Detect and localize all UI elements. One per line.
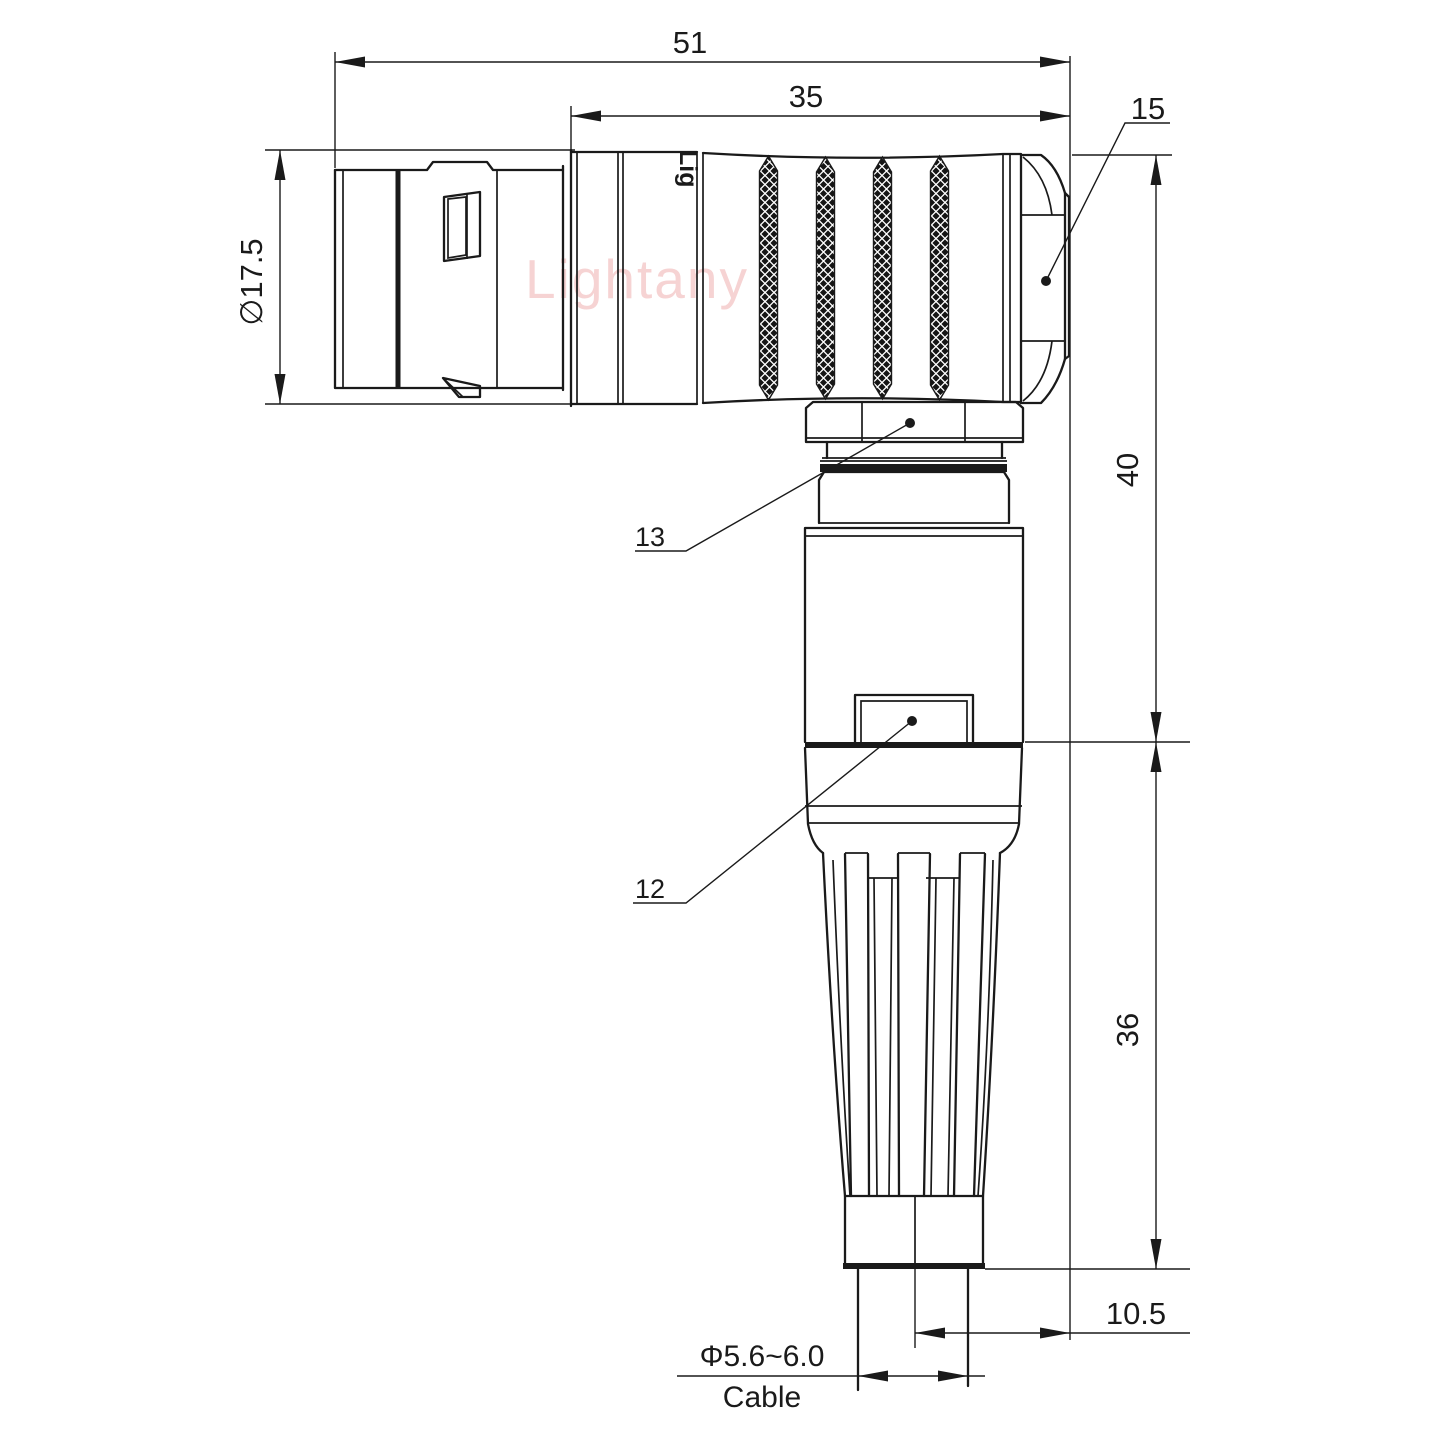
latch-window bbox=[444, 192, 480, 261]
leader-lines bbox=[633, 123, 1170, 903]
ref-label-hex-nut: 15 bbox=[1131, 91, 1165, 126]
cable bbox=[858, 1269, 968, 1390]
dim-cable-offset: 10.5 bbox=[1106, 1296, 1166, 1331]
knurl-strips bbox=[760, 156, 949, 400]
dim-body-length: 35 bbox=[789, 79, 823, 114]
main-body bbox=[805, 528, 1023, 745]
dim-shell-diameter: ∅17.5 bbox=[234, 238, 269, 325]
dimension-texts: 51 35 15 ∅17.5 40 36 10.5 Φ5.6~6.0 Cable… bbox=[234, 25, 1166, 1414]
drawing-page: Lightany Lig bbox=[0, 0, 1440, 1440]
dim-height-upper: 40 bbox=[1110, 453, 1145, 487]
strain-relief-boot bbox=[805, 748, 1022, 1196]
cable-label: Cable bbox=[723, 1381, 801, 1414]
dim-cable-diameter: Φ5.6~6.0 bbox=[700, 1340, 825, 1373]
cable-ferrule bbox=[843, 1196, 985, 1266]
technical-drawing: Lightany Lig bbox=[0, 0, 1440, 1440]
part-label-strain-relief: 12 bbox=[635, 874, 665, 904]
dim-overall-length: 51 bbox=[673, 25, 707, 60]
extension-lines bbox=[265, 52, 1190, 1348]
barrel-engraving: Lig bbox=[674, 150, 702, 188]
elbow-neck bbox=[819, 442, 1009, 523]
watermark-text: Lightany bbox=[525, 248, 749, 310]
dim-height-lower: 36 bbox=[1110, 1013, 1145, 1047]
part-label-coupling-nut: 13 bbox=[635, 522, 665, 552]
watermark: Lightany bbox=[525, 248, 749, 310]
